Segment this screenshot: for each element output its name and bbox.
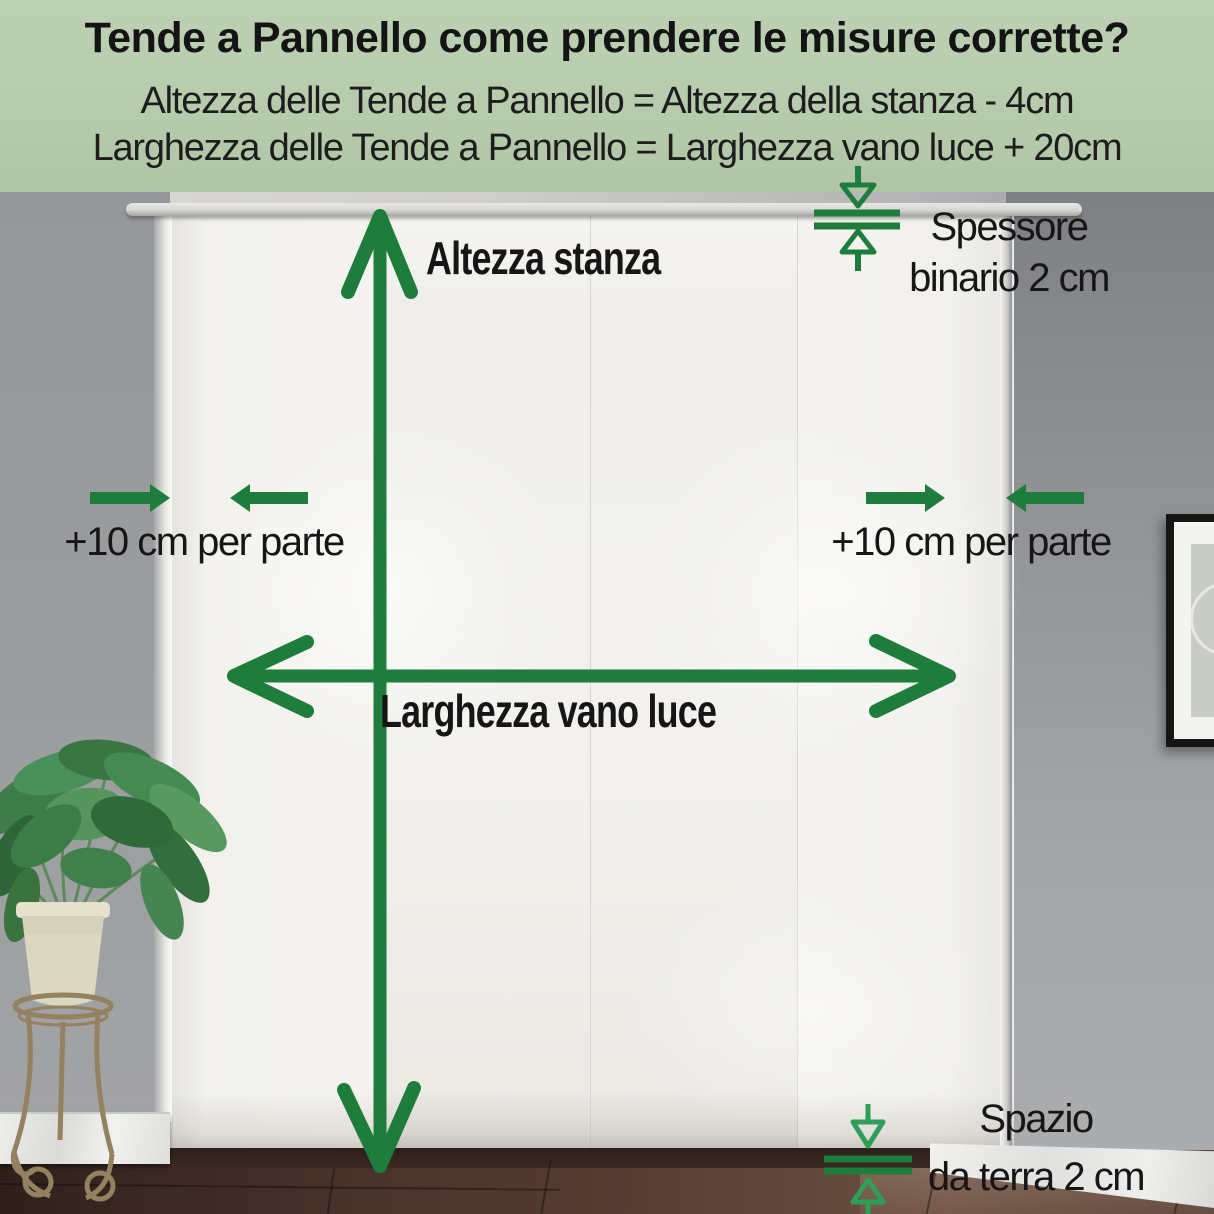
floor-gap-label-line2: da terra 2 cm [900, 1148, 1172, 1206]
floor-gap-arrows [824, 1104, 912, 1214]
floor-gap-label-line1: Spazio [900, 1090, 1172, 1148]
track-thickness-label-line1: Spessore [875, 202, 1143, 253]
infographic-panel-curtain-measuring: Tende a Pannello come prendere le misure… [0, 0, 1214, 1214]
left-margin-label: +10 cm per parte [24, 520, 384, 565]
measurement-annotations [0, 0, 1214, 1214]
room-height-label: Altezza stanza [426, 231, 660, 285]
floor-gap-label: Spazio da terra 2 cm [900, 1090, 1172, 1206]
opening-width-label: Larghezza vano luce [380, 684, 716, 738]
right-margin-label: +10 cm per parte [795, 520, 1147, 565]
right-margin-arrows [866, 484, 1084, 512]
track-thickness-label: Spessore binario 2 cm [875, 202, 1143, 304]
left-margin-arrows [90, 484, 308, 512]
track-thickness-label-line2: binario 2 cm [875, 253, 1143, 304]
